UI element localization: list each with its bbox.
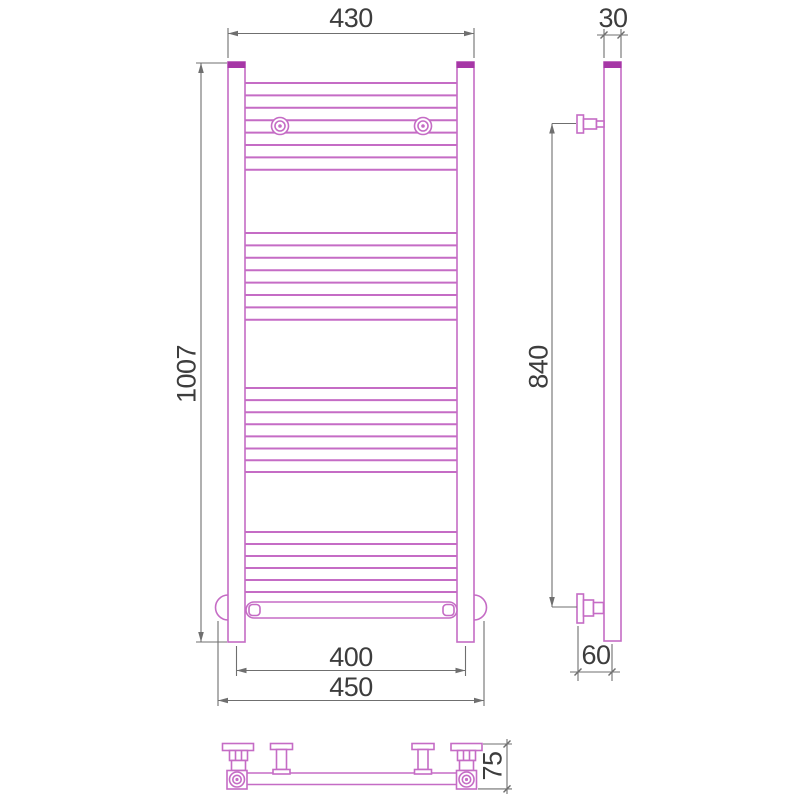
bottom-view: 75: [223, 739, 513, 794]
front-left-tube: [228, 62, 245, 642]
dim-bracket-span: 840: [523, 124, 577, 608]
right-bracket-arc: [474, 595, 486, 620]
bottom-radiator-body: [223, 744, 483, 790]
dim-front-height: 1007: [171, 63, 227, 642]
side-tube: [604, 62, 621, 641]
dim-tube-depth: 30: [597, 3, 628, 58]
bottom-collector: [246, 602, 457, 618]
front-view: 430 1007 400 450: [171, 3, 486, 706]
bottom-right-bracket-stem: [412, 744, 434, 775]
front-right-tube: [457, 62, 474, 642]
dim-axis-spacing: 400: [237, 642, 466, 676]
side-view: 30 840 60: [523, 3, 628, 681]
front-radiator-body: [216, 62, 487, 642]
side-radiator-body: [577, 62, 621, 641]
rung-group-2: [245, 233, 457, 320]
dim-label-wall-offset: 60: [581, 640, 610, 670]
side-bottom-bracket: [577, 594, 604, 623]
bottom-left-valve: [223, 744, 254, 790]
dim-label-base-width: 450: [329, 672, 373, 702]
rung-group-3: [245, 388, 457, 472]
dim-label-front-width: 430: [329, 3, 373, 33]
dim-label-axis-spacing: 400: [329, 642, 373, 672]
right-mount-boss: [415, 118, 432, 135]
left-mount-boss: [272, 118, 289, 135]
rung-group-4: [245, 532, 457, 592]
drawing-canvas: 430 1007 400 450: [0, 0, 800, 800]
radiator-dimension-drawing: 430 1007 400 450: [0, 0, 800, 800]
front-right-tube-cap: [457, 62, 474, 68]
front-left-tube-cap: [228, 62, 245, 68]
dim-label-bracket-span: 840: [523, 345, 553, 389]
dim-front-width: 430: [228, 3, 474, 58]
dim-label-front-height: 1007: [171, 345, 201, 403]
bottom-left-bracket-stem: [271, 744, 293, 775]
dim-label-tube-depth: 30: [598, 3, 627, 33]
side-tube-cap: [604, 62, 621, 68]
left-bracket-arc: [216, 595, 229, 620]
side-top-bracket: [577, 115, 604, 133]
dim-label-valve-height: 75: [477, 751, 507, 780]
